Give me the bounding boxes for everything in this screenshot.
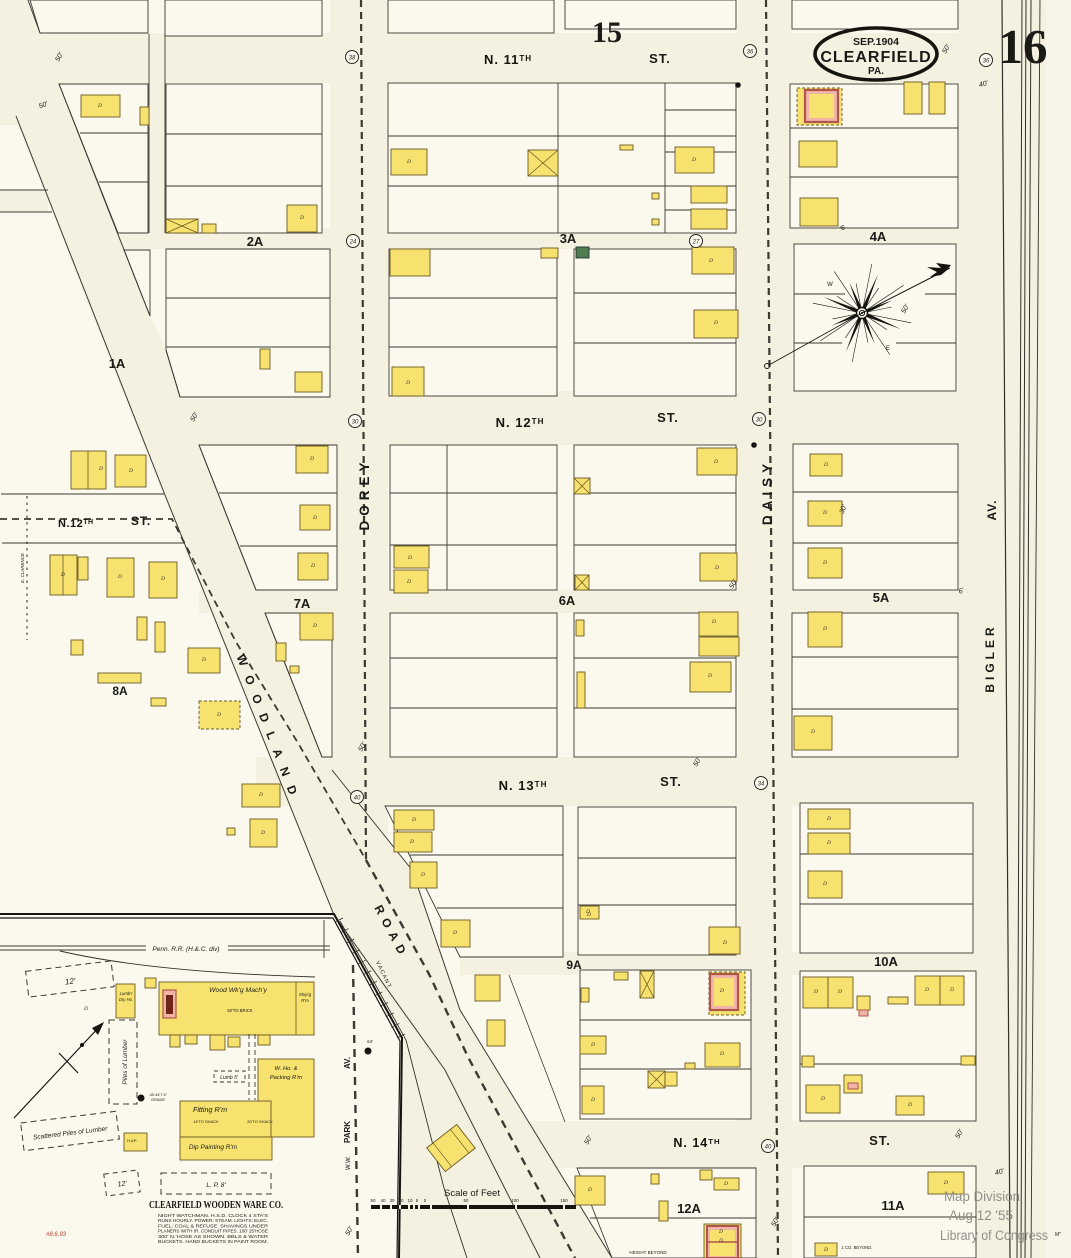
svg-text:W: W <box>827 282 833 288</box>
svg-text:#8.6.93: #8.6.93 <box>46 1232 67 1238</box>
svg-text:D: D <box>826 840 831 846</box>
svg-text:Piles of Lumber: Piles of Lumber <box>122 1039 129 1085</box>
svg-text:D: D <box>407 555 412 561</box>
svg-text:20'TO SHACK: 20'TO SHACK <box>247 1119 273 1124</box>
svg-text:D: D <box>718 1238 723 1244</box>
svg-text:12A: 12A <box>677 1201 701 1216</box>
svg-text:16: 16 <box>999 19 1048 74</box>
svg-text:D: D <box>907 1102 912 1108</box>
svg-text:14'TO SHACK: 14'TO SHACK <box>193 1119 219 1124</box>
svg-text:D: D <box>590 1042 595 1048</box>
svg-text:100: 100 <box>511 1198 519 1203</box>
svg-text:Dip Painting R'm: Dip Painting R'm <box>189 1144 238 1151</box>
svg-text:Aug 12 '55: Aug 12 '55 <box>949 1208 1013 1223</box>
svg-text:AV.: AV. <box>985 499 999 520</box>
svg-text:D: D <box>719 988 724 994</box>
svg-text:D: D <box>60 572 65 578</box>
svg-text:D: D <box>590 1097 595 1103</box>
svg-text:D: D <box>810 729 815 735</box>
svg-text:GRADE: GRADE <box>151 1097 166 1102</box>
svg-text:W.W.: W.W. <box>346 1156 352 1170</box>
svg-text:D: D <box>823 462 828 468</box>
svg-text:D: D <box>822 626 827 632</box>
svg-text:40: 40 <box>765 1145 772 1151</box>
svg-text:D: D <box>708 258 713 264</box>
svg-text:50'TO BRICK: 50'TO BRICK <box>227 1008 252 1013</box>
svg-text:D: D <box>406 579 411 585</box>
svg-text:10: 10 <box>407 1198 413 1203</box>
svg-text:D: D <box>97 103 102 109</box>
svg-text:CLEARFIELD: CLEARFIELD <box>820 49 931 66</box>
svg-text:D: D <box>713 459 718 465</box>
svg-text:D: D <box>98 466 103 472</box>
svg-text:50: 50 <box>463 1198 469 1203</box>
svg-text:D: D <box>822 560 827 566</box>
svg-text:D: D <box>711 619 716 625</box>
svg-text:AV.: AV. <box>343 1057 352 1069</box>
svg-text:36: 36 <box>747 50 754 56</box>
svg-text:Dry Ho.: Dry Ho. <box>119 997 133 1002</box>
svg-text:E. CLARENCE: E. CLARENCE <box>20 552 25 583</box>
svg-text:40: 40 <box>380 1198 386 1203</box>
svg-text:D: D <box>260 830 265 836</box>
svg-text:4A: 4A <box>870 229 887 244</box>
svg-text:D: D <box>309 456 314 462</box>
svg-text:D: D <box>723 1181 728 1187</box>
svg-text:2A: 2A <box>247 234 264 249</box>
svg-text:Fitting R'm: Fitting R'm <box>193 1105 227 1114</box>
svg-text:D: D <box>406 159 411 165</box>
svg-text:PA.: PA. <box>868 66 884 77</box>
svg-text:D: D <box>813 989 818 995</box>
svg-text:D: D <box>837 989 842 995</box>
svg-text:34: 34 <box>758 782 765 788</box>
svg-text:6A: 6A <box>559 593 576 608</box>
svg-text:20: 20 <box>398 1198 404 1203</box>
svg-text:D: D <box>949 987 954 993</box>
svg-text:CLEARFIELD WOODEN WARE CO.: CLEARFIELD WOODEN WARE CO. <box>149 1199 283 1211</box>
svg-text:D: D <box>117 574 122 580</box>
svg-text:D: D <box>585 909 590 915</box>
svg-text:D: D <box>822 881 827 887</box>
svg-text:D: D <box>587 1187 592 1193</box>
svg-text:D: D <box>310 563 315 569</box>
svg-text:30: 30 <box>352 420 359 426</box>
svg-text:Penn. R.R. (H.&.C. div): Penn. R.R. (H.&.C. div) <box>152 946 219 953</box>
svg-text:64': 64' <box>367 1039 373 1044</box>
svg-text:D: D <box>420 872 425 878</box>
svg-text:E: E <box>886 346 890 352</box>
svg-text:D: D <box>822 510 827 516</box>
svg-text:HEIGHT BEYOND: HEIGHT BEYOND <box>629 1250 667 1255</box>
svg-text:D: D <box>409 839 414 845</box>
svg-text:ST.: ST. <box>660 774 682 789</box>
svg-text:D: D <box>160 576 165 582</box>
svg-text:1A: 1A <box>109 356 126 371</box>
svg-text:W. Ho. &: W. Ho. & <box>275 1066 298 1072</box>
svg-text:D: D <box>216 712 221 718</box>
svg-text:D: D <box>258 792 263 798</box>
svg-text:D: D <box>312 515 317 521</box>
svg-text:36: 36 <box>983 59 990 65</box>
svg-text:D: D <box>707 673 712 679</box>
svg-text:D: D <box>299 215 304 221</box>
svg-text:BIGLER: BIGLER <box>983 623 997 692</box>
svg-text:10A: 10A <box>874 954 898 969</box>
svg-text:Packing R'm: Packing R'm <box>270 1075 303 1081</box>
svg-text:30: 30 <box>756 418 763 424</box>
svg-text:D: D <box>924 987 929 993</box>
svg-text:Lumb'r: Lumb'r <box>120 991 133 996</box>
svg-text:27: 27 <box>692 240 700 246</box>
svg-text:Scale of Feet: Scale of Feet <box>444 1188 500 1199</box>
svg-text:12': 12' <box>117 1180 128 1188</box>
svg-text:D: D <box>719 1051 724 1057</box>
svg-text:1 CO. BEYOND.: 1 CO. BEYOND. <box>842 1245 873 1250</box>
svg-text:R'm: R'm <box>301 998 309 1003</box>
svg-text:8A: 8A <box>112 684 128 698</box>
svg-text:D: D <box>943 1180 948 1186</box>
svg-text:7A: 7A <box>294 596 311 611</box>
svg-text:D: D <box>820 1096 825 1102</box>
svg-text:D: D <box>312 623 317 629</box>
svg-text:40: 40 <box>354 796 361 802</box>
svg-text:12': 12' <box>64 976 76 986</box>
svg-text:50: 50 <box>370 1198 376 1203</box>
svg-text:Lumb 5': Lumb 5' <box>220 1075 239 1081</box>
svg-text:24: 24 <box>349 240 357 246</box>
svg-text:30: 30 <box>389 1198 395 1203</box>
svg-text:D: D <box>128 468 133 474</box>
svg-text:9A: 9A <box>566 958 582 972</box>
svg-text:Map Division: Map Division <box>944 1189 1020 1204</box>
svg-text:PARK: PARK <box>343 1121 352 1143</box>
svg-text:DOREY: DOREY <box>357 457 372 530</box>
svg-text:D: D <box>713 320 718 326</box>
svg-text:Wood Wk'g Mach'y: Wood Wk'g Mach'y <box>209 987 267 994</box>
svg-text:3A: 3A <box>560 231 577 246</box>
svg-text:Library of Congress: Library of Congress <box>940 1228 1048 1243</box>
svg-text:H.&P.: H.&P. <box>127 1138 137 1143</box>
svg-text:D: D <box>411 817 416 823</box>
svg-text:38: 38 <box>349 56 356 62</box>
svg-text:15: 15 <box>592 16 622 49</box>
svg-text:M'': M'' <box>1055 1232 1061 1238</box>
svg-text:D: D <box>722 940 727 946</box>
svg-text:D: D <box>691 157 696 163</box>
svg-text:D: D <box>718 1229 723 1235</box>
svg-text:D: D <box>452 930 457 936</box>
svg-text:D: D <box>714 565 719 571</box>
svg-text:D: D <box>201 657 206 663</box>
svg-text:L. P. 8': L. P. 8' <box>206 1182 226 1189</box>
svg-text:D: D <box>823 1247 828 1253</box>
svg-text:D: D <box>826 816 831 822</box>
svg-text:ST.: ST. <box>869 1133 891 1148</box>
svg-text:150: 150 <box>560 1198 568 1203</box>
svg-text:11A: 11A <box>881 1198 905 1213</box>
svg-text:BUCKETS. HAND BUCKETS IN PAINT: BUCKETS. HAND BUCKETS IN PAINT ROOM. <box>158 1239 268 1244</box>
svg-text:D: D <box>83 1006 88 1012</box>
svg-text:ST.: ST. <box>657 410 679 425</box>
svg-text:DAISY: DAISY <box>760 459 775 525</box>
svg-text:ST.: ST. <box>131 514 151 528</box>
svg-text:ST.: ST. <box>649 51 671 66</box>
svg-text:5A: 5A <box>873 590 890 605</box>
svg-text:Ship'g: Ship'g <box>299 992 312 997</box>
svg-text:SEP.1904: SEP.1904 <box>853 36 899 48</box>
svg-text:D: D <box>405 380 410 386</box>
